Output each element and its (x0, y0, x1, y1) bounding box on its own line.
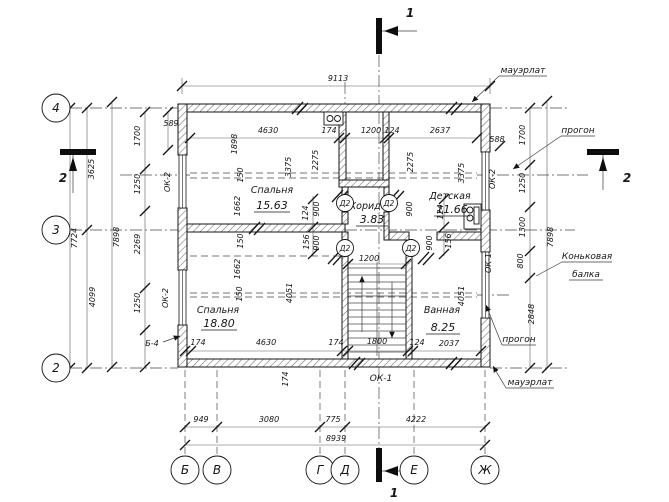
dim-589: 589 (163, 119, 178, 128)
callout-mauerlat-bottom: мауэрлат (508, 378, 554, 388)
dim-588: 588 (489, 135, 504, 144)
door-tag-2: Д2 (383, 199, 395, 208)
room-kids-area: 11.66 (436, 203, 468, 216)
window-tag-ok2-left-top: ОК-2 (163, 172, 172, 192)
dim-7898-left: 7898 (112, 227, 121, 247)
dim-1200-top: 1200 (361, 126, 381, 135)
dim-900-cr1: 900 (405, 201, 414, 216)
dim-174-b2: 174 (328, 338, 343, 347)
dim-900-cl1: 900 (312, 201, 321, 216)
dim-150-a: 150 (236, 167, 245, 182)
dim-775: 775 (325, 415, 340, 424)
dim-949: 949 (193, 415, 208, 424)
dim-1250-left2: 1250 (133, 293, 142, 313)
section-mark-2-left: 2 (59, 171, 67, 185)
dim-1300: 1300 (518, 217, 527, 237)
window-tag-ok2-right: ОК-2 (488, 169, 497, 189)
dim-1200-stair: 1200 (359, 254, 379, 263)
dim-2037: 2037 (439, 339, 460, 348)
axis-bubble-2: 2 (52, 361, 60, 375)
dim-1662-low: 1662 (233, 259, 242, 279)
section-mark-2-right: 2 (623, 171, 631, 185)
room-bedroom2-name: Спальня (197, 305, 240, 316)
drawing-sheet: 9113 949 3080 775 4222 8939 7724 3625 40… (0, 0, 669, 502)
section-mark-1-bottom: 1 (390, 486, 398, 500)
dim-2275-l: 2275 (311, 150, 320, 170)
dim-9113: 9113 (328, 74, 348, 83)
axis-bubble-e: Е (410, 463, 418, 477)
dim-1700-left: 1700 (133, 126, 142, 146)
dim-3375-r: 3375 (457, 163, 466, 183)
dim-2269: 2269 (133, 234, 142, 254)
axis-bubble-v: В (213, 463, 221, 477)
door-tag-1: Д2 (339, 199, 351, 208)
callout-mauerlat-top: мауэрлат (501, 66, 547, 76)
dim-8939: 8939 (326, 434, 346, 443)
dim-3080: 3080 (259, 415, 279, 424)
dim-124-cl: 124 (301, 205, 310, 220)
dim-4099: 4099 (88, 287, 97, 307)
axis-bubble-4: 4 (52, 101, 60, 115)
room-bath-area: 8.25 (431, 321, 456, 334)
room-corridor-area: 3.83 (360, 213, 385, 226)
door-tag-4: Д2 (405, 244, 417, 253)
dim-4630-top: 4630 (258, 126, 278, 135)
dim-7724: 7724 (70, 228, 79, 248)
axis-bubble-d: Д (339, 463, 349, 477)
dim-150-b: 150 (236, 233, 245, 248)
axis-bubbles: 4 3 2 Б В Г Д Е Ж (42, 94, 499, 484)
dim-4051-r: 4051 (457, 286, 466, 306)
dim-7898-right: 7898 (546, 227, 555, 247)
dim-4051-l: 4051 (285, 283, 294, 303)
room-bedroom2-area: 18.80 (203, 317, 235, 330)
callout-ridge-line1: Коньковая (562, 252, 613, 262)
dim-124-b: 124 (409, 338, 424, 347)
dim-4222: 4222 (406, 415, 426, 424)
dim-1662-up: 1662 (233, 196, 242, 216)
callout-purlin-bottom: прогон (502, 335, 535, 345)
door-tag-3: Д2 (339, 244, 351, 253)
floor-plan-svg: 9113 949 3080 775 4222 8939 7724 3625 40… (0, 0, 669, 502)
section-mark-1-top: 1 (406, 6, 414, 20)
dim-2275-r: 2275 (406, 152, 415, 172)
dim-156-cl: 156 (302, 234, 311, 249)
dim-2637: 2637 (430, 126, 451, 135)
dim-124-top: 124 (384, 126, 399, 135)
dim-1898: 1898 (230, 134, 239, 154)
room-bedroom1-area: 15.63 (256, 199, 288, 212)
window-tag-ok2-left-bottom: ОК-2 (161, 288, 170, 308)
axis-lines (70, 55, 575, 456)
dim-4630-b: 4630 (256, 338, 276, 347)
callout-purlin-top: прогон (561, 126, 594, 136)
dim-1800: 1800 (367, 337, 387, 346)
callout-ridge-line2: балка (572, 270, 600, 280)
beam-tag-b4: Б-4 (145, 339, 158, 348)
room-kids-name: Детская (428, 191, 471, 202)
axis-bubble-b: Б (181, 463, 189, 477)
dim-150-c: 150 (235, 286, 244, 301)
dim-1250-left: 1250 (133, 174, 142, 194)
dim-2848: 2848 (527, 304, 536, 324)
dim-156-cr: 156 (444, 233, 453, 248)
dim-174-top: 174 (321, 126, 336, 135)
dim-174-under: 174 (281, 371, 290, 386)
window-tag-ok1-bottom: ОК-1 (370, 374, 392, 384)
dim-174-b1: 174 (190, 338, 205, 347)
callouts: мауэрлат прогон Коньковая балка прогон м… (472, 66, 613, 388)
window-tag-ok1-right: ОК-1 (484, 253, 493, 273)
dim-900-cr2: 900 (425, 235, 434, 250)
dim-800: 800 (516, 253, 525, 268)
axis-bubble-3: 3 (52, 223, 60, 237)
dim-1700-right: 1700 (518, 125, 527, 145)
dim-3375-l: 3375 (284, 157, 293, 177)
axis-bubble-zh: Ж (478, 463, 493, 477)
dim-3625: 3625 (87, 159, 96, 179)
room-bedroom1-name: Спальня (251, 185, 294, 196)
dim-1250-right: 1250 (518, 173, 527, 193)
room-bath-name: Ванная (424, 305, 461, 316)
dim-900-cl2: 900 (312, 235, 321, 250)
